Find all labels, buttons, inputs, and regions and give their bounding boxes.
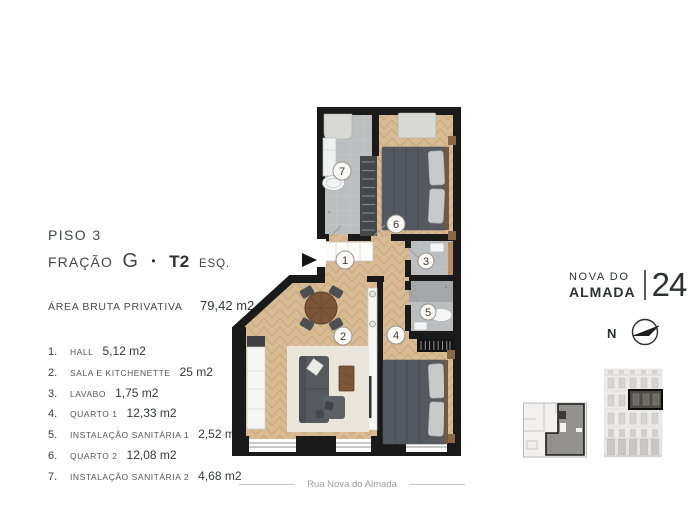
fraction-label: FRAÇÃO (48, 254, 113, 270)
room-index: 6. (48, 450, 70, 462)
room-label-5: 5 (420, 304, 436, 320)
room-index: 2. (48, 367, 70, 379)
bullet-separator: • (151, 254, 155, 268)
room-area: 4,68 m2 (198, 469, 241, 483)
building-keyplan-image (522, 401, 588, 459)
room-label-2: 2 (334, 327, 352, 345)
room-index: 5. (48, 429, 70, 441)
gross-area-label: ÁREA BRUTA PRIVATIVA (48, 301, 183, 313)
svg-text:3: 3 (423, 256, 429, 268)
svg-text:4: 4 (393, 330, 399, 342)
street-line-left (239, 484, 295, 485)
room-name: INSTALAÇÃO SANITÁRIA 2 (70, 472, 189, 482)
svg-text:6: 6 (393, 219, 399, 231)
room-area: 5,12 m2 (102, 344, 145, 358)
tv-console (368, 288, 377, 430)
street-name: Rua Nova do Almada (307, 479, 397, 490)
svg-text:2: 2 (340, 331, 346, 343)
room-name: SALA E KITCHENETTE (70, 368, 171, 378)
room-name: QUARTO 2 (70, 451, 118, 461)
room-area: 12,08 m2 (127, 448, 177, 462)
bed-quarto-1 (383, 350, 455, 444)
compass-icon (619, 315, 661, 349)
highlighted-floor-band (629, 390, 662, 409)
fraction-letter: G (122, 250, 138, 272)
room-label-4: 4 (387, 326, 405, 344)
brand-logo: NOVA DO ALMADA 24 (569, 270, 686, 300)
room-index: 4. (48, 408, 70, 420)
north-label: N (607, 326, 616, 341)
room-label-1: 1 (336, 251, 354, 269)
room-area: 12,33 m2 (127, 406, 177, 420)
entrance-arrow-icon (302, 253, 317, 267)
room-name: QUARTO 1 (70, 409, 118, 419)
coffee-table (339, 366, 354, 391)
room-index: 7. (48, 471, 70, 483)
brand-line2: ALMADA (569, 284, 636, 300)
toilet-icon (430, 243, 444, 252)
room-area: 25 m2 (180, 365, 213, 379)
compass: N (607, 315, 661, 349)
brand-words: NOVA DO ALMADA (569, 271, 636, 300)
towel-rack (360, 156, 377, 236)
floor-plan-sheet: PISO 3 FRAÇÃO G • T2 ESQ. ÁREA BRUTA PRI… (0, 0, 700, 522)
floor-plan-image: 1 2 3 4 5 6 7 (224, 84, 470, 470)
room-index: 3. (48, 388, 70, 400)
brand-line1: NOVA DO (569, 271, 636, 283)
room-name: LAVABO (70, 389, 106, 399)
room-index: 1. (48, 346, 70, 358)
svg-text:7: 7 (339, 166, 345, 178)
room-label-6: 6 (387, 215, 405, 233)
room-name: INSTALAÇÃO SANITÁRIA 1 (70, 430, 189, 440)
room-list-item: 7.INSTALAÇÃO SANITÁRIA 24,68 m2 (48, 469, 258, 483)
svg-text:1: 1 (342, 255, 348, 267)
building-facade-image (604, 367, 664, 459)
room-label-3: 3 (418, 253, 434, 269)
brand-divider (644, 270, 646, 300)
kitchenette-counter (247, 336, 265, 429)
typology: T2 (169, 252, 189, 271)
room-name: HALL (70, 347, 93, 357)
svg-text:5: 5 (425, 307, 431, 319)
street-label-row: Rua Nova do Almada (240, 479, 464, 490)
entrance-opening (316, 239, 326, 267)
room-area: 1,75 m2 (115, 386, 158, 400)
street-line-right (409, 484, 465, 485)
room-label-7: 7 (333, 162, 351, 180)
dining-table (299, 285, 344, 331)
brand-number: 24 (652, 270, 687, 300)
